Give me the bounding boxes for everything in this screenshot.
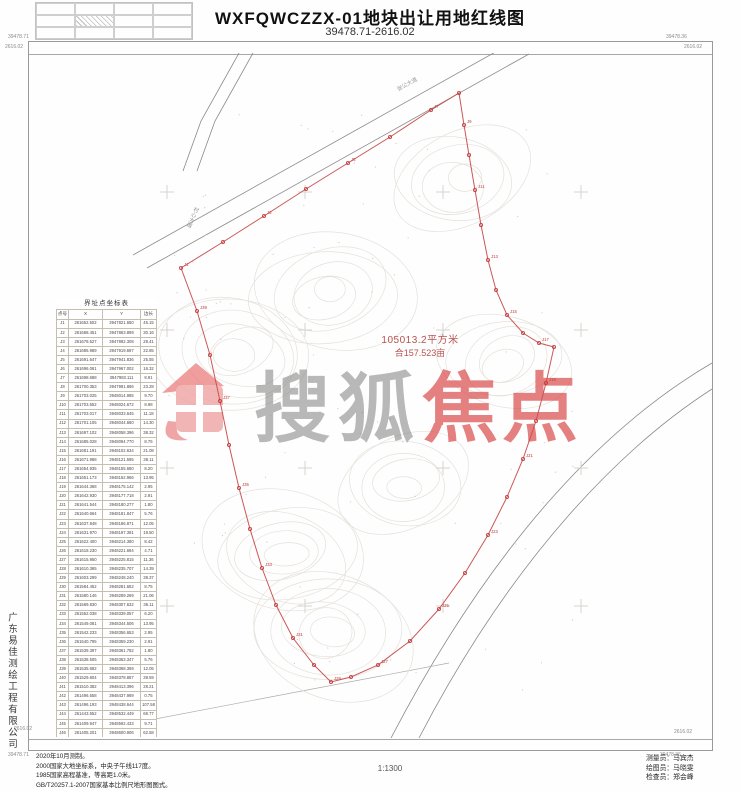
svg-text:J33: J33 (265, 562, 273, 567)
credit-checker: 检查员：郑会峰 (646, 773, 694, 783)
grid-coord-bottom-right-x: 39478.36 (660, 752, 681, 758)
svg-text:J7: J7 (434, 104, 439, 109)
table-row: J8261700.3533947991.86623.28 (57, 383, 157, 392)
table-row: J10261703.5523948024.6728.98 (57, 401, 157, 410)
table-row: J16261671.9883948121.59538.11 (57, 455, 157, 464)
svg-text:J5: J5 (351, 157, 356, 162)
table-row: J20261642.9303948177.7182.91 (57, 492, 157, 501)
table-row: J11261703.0173948033.64511.18 (57, 410, 157, 419)
note-line: 1985国家高程基准，等高距1.0米。 (36, 771, 171, 781)
parcel-area-label: 105013.2平方米 合157.523亩 (325, 331, 515, 359)
table-row: J27261615.9503948225.81511.36 (57, 555, 157, 564)
grid-coord-top-right-y: 2616.02 (684, 44, 702, 50)
note-line: 2020年10月测制。 (36, 752, 171, 762)
table-row: J37261539.3973948361.7821.80 (57, 646, 157, 655)
note-line: GB/T20257.1-2007国家基本比例尺地形图图式。 (36, 781, 171, 791)
table-row: J9261703.0253948014.9859.70 (57, 392, 157, 401)
table-row: J43261496.1933948438.644107.58 (57, 701, 157, 710)
table-row: J25261622.4003948214.3808.42 (57, 537, 157, 546)
table-row: J31261580.1463948289.26921.06 (57, 592, 157, 601)
grid-coord-bottom-left-y: 2616.02 (14, 726, 32, 732)
table-row: J44261443.5523948532.44968.77 (57, 710, 157, 719)
svg-text:J31: J31 (296, 632, 304, 637)
table-row: J4261685.9893947919.69722.85 (57, 346, 157, 355)
svg-text:J23: J23 (491, 529, 499, 534)
svg-text:J27: J27 (381, 659, 389, 664)
table-row: J12261701.1053948044.66014.30 (57, 419, 157, 428)
sheet-number: 39478.71-2616.02 (0, 26, 740, 38)
svg-text:J25: J25 (442, 603, 450, 608)
svg-text:J1: J1 (184, 262, 189, 267)
table-row: J6261696.0613947967.00216.32 (57, 364, 157, 373)
table-row: J18261651.1733948162.96613.95 (57, 474, 157, 483)
table-row: J24261631.9703948197.39119.50 (57, 528, 157, 537)
parcel-area-mu: 合157.523亩 (325, 346, 515, 359)
svg-text:J39: J39 (200, 305, 208, 310)
table-row: J29261603.2993948248.24038.37 (57, 574, 157, 583)
sheet: WXFQWCZZX-01地块出让用地红线图 39478.71-2616.02 3… (0, 0, 740, 791)
svg-text:J11: J11 (478, 184, 485, 189)
table-row: J19261644.3683948175.1422.95 (57, 483, 157, 492)
table-row: J17261654.9353948155.6808.20 (57, 465, 157, 474)
table-row: J39261535.6823948368.36912.05 (57, 665, 157, 674)
table-row: J1261652.5023947821.65045.15 (57, 319, 157, 328)
table-row: J36261540.7953948359.2302.91 (57, 637, 157, 646)
note-line: 2000国家大地坐标系，中央子午线117度。 (36, 762, 171, 772)
table-row: J21261641.5443948180.2771.80 (57, 501, 157, 510)
table-row: J23261637.8483948186.87112.05 (57, 519, 157, 528)
col-header-length: 边长 (141, 310, 157, 320)
coordinate-table-title: 界址点坐标表 (56, 299, 157, 309)
table-row: J5261691.6473947941.83625.55 (57, 355, 157, 364)
table-row: J32261569.8303948307.63236.11 (57, 601, 157, 610)
svg-text:J21: J21 (526, 453, 534, 458)
table-row: J7261698.6883947983.1118.91 (57, 374, 157, 383)
map-notes: 2020年10月测制。 2000国家大地坐标系，中央子午线117度。 1985国… (36, 752, 171, 790)
grid-coord-top-right-x: 39478.36 (666, 34, 687, 40)
table-header-row: 点号 X Y 边长 (57, 310, 157, 320)
table-row: J2261668.4513947863.89930.16 (57, 328, 157, 337)
svg-text:J17: J17 (542, 337, 550, 342)
table-row: J30261584.4523948281.6528.75 (57, 583, 157, 592)
coord-table-body: J1261652.5023947821.65045.15J2261668.451… (57, 319, 157, 737)
grid-coord-top-left-x: 39478.71 (8, 34, 29, 40)
svg-text:J37: J37 (223, 395, 231, 400)
svg-text:J9: J9 (467, 119, 472, 124)
table-row: J22261640.6643948181.8475.76 (57, 510, 157, 519)
table-row: J34261549.0813948344.50613.95 (57, 619, 157, 628)
coordinate-table: 界址点坐标表 点号 X Y 边长 J1261652.5023947821.650… (56, 299, 157, 737)
table-row: J3261678.5273947892.30828.41 (57, 337, 157, 346)
credits-block: 测量员：马宾杰 绘图员：马晓雯 检查员：郑会峰 (646, 754, 694, 783)
map-scale: 1:1300 (320, 764, 460, 773)
svg-text:J13: J13 (491, 254, 499, 259)
svg-text:J29: J29 (334, 676, 342, 681)
svg-text:J3: J3 (267, 210, 272, 215)
table-row: J15261681.1913948102.63421.08 (57, 446, 157, 455)
grid-coord-top-left-y: 2616.02 (5, 44, 23, 50)
table-row: J28261610.3653948235.70714.39 (57, 565, 157, 574)
table-row: J45261409.9473948592.4339.71 (57, 719, 157, 728)
credit-drafter: 绘图员：马晓雯 (646, 764, 694, 774)
frame-inner-line-bottom (29, 739, 712, 740)
table-row: J13261697.1023948058.39638.32 (57, 428, 157, 437)
col-header-point: 点号 (57, 310, 69, 320)
grid-coord-bottom-left-x: 39478.71 (8, 752, 29, 758)
svg-text:J15: J15 (510, 309, 518, 314)
table-row: J42261496.5583948437.9890.75 (57, 692, 157, 701)
table-row: J35261542.2333948356.6532.95 (57, 628, 157, 637)
table-row: J38261538.5053948363.3475.76 (57, 655, 157, 664)
table-row: J14261685.0283948094.7708.75 (57, 437, 157, 446)
svg-text:J35: J35 (242, 482, 250, 487)
table-row: J26261618.2303948221.6944.71 (57, 546, 157, 555)
parcel-area-sqm: 105013.2平方米 (325, 331, 515, 346)
table-row: J40261529.8043948378.88739.59 (57, 674, 157, 683)
col-header-x: X (69, 310, 103, 320)
table-row: J41261510.3823948413.39628.21 (57, 683, 157, 692)
table-row: J33261552.0383948339.0576.20 (57, 610, 157, 619)
grid-coord-bottom-right-y: 2616.02 (674, 729, 692, 735)
svg-text:J19: J19 (549, 377, 557, 382)
table-row: J46261405.2013948600.90662.58 (57, 728, 157, 737)
coordinate-table-grid: 点号 X Y 边长 J1261652.5023947821.65045.15J2… (56, 309, 157, 737)
col-header-y: Y (103, 310, 141, 320)
